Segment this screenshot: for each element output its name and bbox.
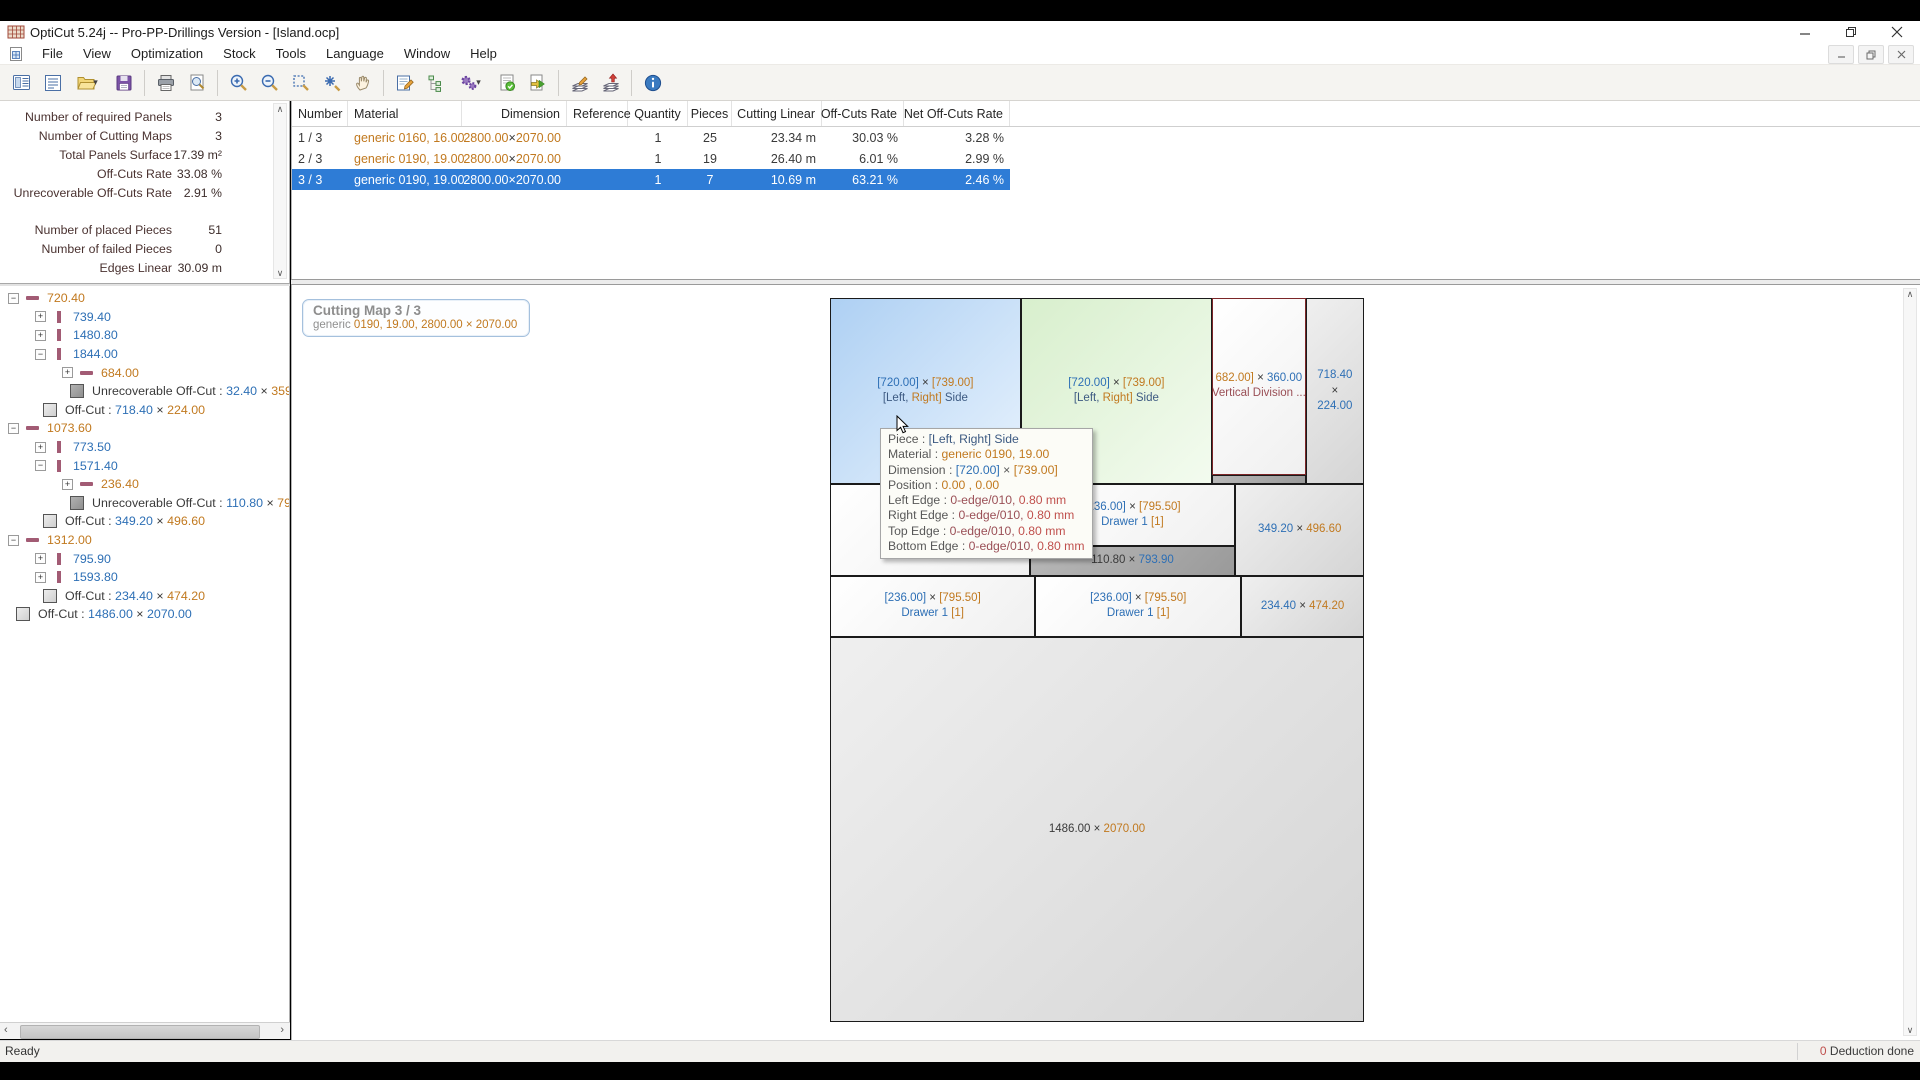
zoom-fit-button[interactable] xyxy=(316,69,347,97)
vertical-cut-icon xyxy=(57,571,61,583)
text-segment: 474.20 xyxy=(167,589,205,603)
text-segment: Bottom Edge : xyxy=(888,539,969,553)
collapse-icon[interactable]: − xyxy=(8,423,19,434)
text-segment: [Left, Right] Side xyxy=(929,432,1019,446)
column-header-reference[interactable]: Reference xyxy=(567,101,628,126)
collapse-icon[interactable]: − xyxy=(35,349,46,360)
text-segment: 1844.00 xyxy=(73,347,118,361)
open-button[interactable]: ▾ xyxy=(68,69,108,97)
tree-item-label: 773.50 xyxy=(73,440,111,454)
text-segment: [720.00] xyxy=(1068,377,1110,389)
scroll-up-icon[interactable]: ∧ xyxy=(277,104,284,114)
piece-label-line: × xyxy=(1331,384,1338,399)
stat-row: Number of Cutting Maps3 xyxy=(0,126,289,145)
vertical-cut-icon xyxy=(57,460,61,472)
text-segment: Dimension : xyxy=(888,463,956,477)
text-segment: 739.40 xyxy=(73,310,111,324)
tree-item[interactable]: +739.40 xyxy=(0,308,289,327)
table-cell: 63.21 % xyxy=(822,169,904,190)
tree-item[interactable]: +795.90 xyxy=(0,549,289,568)
table-cell: 3 / 3 xyxy=(292,169,348,190)
table-cell: generic 0190, 19.00 xyxy=(348,148,462,169)
mdi-close-button[interactable] xyxy=(1888,45,1914,64)
text-segment: [1] xyxy=(951,607,964,619)
text-segment: 2070.00 xyxy=(516,152,561,166)
pan-hand-icon xyxy=(353,73,373,93)
tree-item-label: Off-Cut : 1486.00 × 2070.00 xyxy=(38,607,192,621)
save-button[interactable] xyxy=(108,69,139,97)
tree-item[interactable]: Off-Cut : 718.40 × 224.00 xyxy=(0,401,289,420)
offcut-region[interactable]: 1486.00 × 2070.00 xyxy=(830,637,1364,1022)
text-segment: 6.01 % xyxy=(859,152,898,166)
tree-item[interactable]: Off-Cut : 1486.00 × 2070.00 xyxy=(0,605,289,624)
offcut-region[interactable]: 718.40×224.00 xyxy=(1306,298,1364,484)
text-segment: [795.50] xyxy=(939,592,981,604)
info-button[interactable] xyxy=(637,69,668,97)
text-segment: 349.20 xyxy=(115,514,153,528)
deduction-status: 0 Deduction done xyxy=(1820,1044,1914,1058)
text-segment: 0-edge/010, xyxy=(950,493,1015,507)
tooltip-line: Position : 0.00 , 0.00 xyxy=(888,478,1085,493)
tree-item[interactable]: Off-Cut : 234.40 × 474.20 xyxy=(0,587,289,606)
column-header-off-cuts-rate[interactable]: Off-Cuts Rate xyxy=(822,101,904,126)
column-header-net-off-cuts-rate[interactable]: Net Off-Cuts Rate xyxy=(904,101,1010,126)
print-list-icon xyxy=(43,73,63,93)
text-segment: 1571.40 xyxy=(73,459,118,473)
text-segment: × xyxy=(153,589,167,603)
piece-label-line: Drawer 1 [1] xyxy=(1107,606,1170,621)
unrecoverable-offcut-icon xyxy=(70,384,84,398)
text-segment: 2.99 % xyxy=(965,152,1004,166)
text-segment: 1 xyxy=(655,173,662,187)
text-segment: 2 / 3 xyxy=(298,152,322,166)
table-cell: 1 xyxy=(628,169,688,190)
piece[interactable]: [236.00] × [795.50]Drawer 1 [1] xyxy=(1035,576,1241,638)
column-header-number[interactable]: Number xyxy=(292,101,348,126)
minimize-button[interactable] xyxy=(1782,21,1828,43)
edges-apply-button[interactable] xyxy=(595,69,626,97)
scrollbar-thumb[interactable] xyxy=(20,1025,260,1039)
text-segment: Left Edge : xyxy=(888,493,950,507)
table-cell: 2 / 3 xyxy=(292,148,348,169)
text-segment: × xyxy=(509,152,516,166)
toolbar-separator xyxy=(217,70,218,96)
table-cell: 1 xyxy=(628,148,688,169)
text-segment: 2.46 % xyxy=(965,173,1004,187)
piece-label-line: 1486.00 × 2070.00 xyxy=(1049,822,1145,837)
text-segment: [739.00] xyxy=(1123,377,1165,389)
cutting-map[interactable]: [720.00] × [739.00][Left, Right] Side[72… xyxy=(830,298,1364,1022)
print-preview-button[interactable] xyxy=(181,69,212,97)
statistics-rows: Number of required Panels3Number of Cutt… xyxy=(0,101,289,277)
text-segment: 1 xyxy=(655,131,662,145)
report-button[interactable] xyxy=(6,69,37,97)
expand-icon[interactable]: + xyxy=(62,479,73,490)
offcut-region[interactable]: 349.20 × 496.60 xyxy=(1235,484,1364,575)
text-segment: 63.21 % xyxy=(852,173,898,187)
table-cell: 2800.00 × 2070.00 xyxy=(462,169,567,190)
optimization-parameters-icon xyxy=(426,73,446,93)
validate-icon xyxy=(497,73,517,93)
text-segment: 0-edge/010, xyxy=(969,539,1034,553)
horizontal-cut-icon xyxy=(26,538,39,542)
text-segment: × xyxy=(133,607,147,621)
unrecoverable-offcut-region[interactable] xyxy=(1212,475,1306,484)
tooltip-line: Top Edge : 0-edge/010, 0.80 mm xyxy=(888,524,1085,539)
text-segment: generic 0190, 19.00 xyxy=(354,173,465,187)
text-segment: 2800.00 xyxy=(463,131,508,145)
print-button[interactable] xyxy=(150,69,181,97)
text-segment: Drawer 1 xyxy=(901,607,951,619)
collapse-icon[interactable]: − xyxy=(8,535,19,546)
collapse-icon[interactable]: − xyxy=(8,293,19,304)
text-segment: 32.40 xyxy=(226,384,257,398)
vertical-cut-icon xyxy=(57,553,61,565)
tree-item-label: 684.00 xyxy=(101,366,139,380)
stat-value: 0 xyxy=(172,242,222,256)
tree-item-label: Off-Cut : 234.40 × 474.20 xyxy=(65,589,205,603)
stat-value: 51 xyxy=(172,223,222,237)
status-message: Ready xyxy=(5,1044,40,1058)
table-row[interactable]: 3 / 3generic 0190, 19.002800.00 × 2070.0… xyxy=(292,169,1010,190)
text-segment: Top Edge : xyxy=(888,524,950,538)
text-segment: 718.40 xyxy=(1317,369,1352,381)
text-segment: Right] xyxy=(908,392,941,404)
close-button[interactable] xyxy=(1874,21,1920,43)
menu-window[interactable]: Window xyxy=(394,44,460,63)
piece-label-line: Drawer 1 [1] xyxy=(901,606,964,621)
text-segment: × xyxy=(1331,385,1338,397)
text-segment: [795.50] xyxy=(1145,592,1187,604)
mdi-restore-button[interactable] xyxy=(1858,45,1884,64)
save-icon xyxy=(114,73,134,93)
table-cell: 1 xyxy=(628,127,688,148)
expand-icon[interactable]: + xyxy=(35,553,46,564)
text-segment: Side xyxy=(942,392,968,404)
tooltip-line: Bottom Edge : 0-edge/010, 0.80 mm xyxy=(888,539,1085,554)
text-segment: 793.90 xyxy=(1139,554,1174,566)
scroll-right-icon[interactable]: › xyxy=(280,1024,284,1036)
menu-bar: FileViewOptimizationStockToolsLanguageWi… xyxy=(0,43,1920,64)
map-scrollbar[interactable]: ∧ ∨ xyxy=(1903,288,1917,1036)
piece-label-line: [236.00] × [795.50] xyxy=(885,591,981,606)
piece-label-line: Drawer 1 [1] xyxy=(1101,515,1164,530)
stats-scrollbar[interactable]: ∧ ∨ xyxy=(273,103,287,279)
zoom-window-icon xyxy=(291,73,311,93)
toolbar-separator xyxy=(558,70,559,96)
table-cell xyxy=(567,127,628,148)
edit-pieces-button[interactable] xyxy=(389,69,420,97)
text-segment: Right Edge : xyxy=(888,508,958,522)
edges-apply-icon xyxy=(601,73,621,93)
table-header-row: NumberMaterialDimensionReferenceQuantity… xyxy=(292,101,1920,127)
tree-item-label: 1593.80 xyxy=(73,570,118,584)
cutting-map-panel: Cutting Map 3 / 3 generic 0190, 19.00, 2… xyxy=(291,285,1920,1040)
tree-item[interactable]: −720.40 xyxy=(0,289,289,308)
mdi-minimize-button[interactable] xyxy=(1828,45,1854,64)
text-segment: 0.80 mm xyxy=(1024,508,1075,522)
menu-view[interactable]: View xyxy=(73,44,121,63)
tree-item[interactable]: Unrecoverable Off-Cut : 110.80 × 793.9 xyxy=(0,494,289,513)
horizontal-cut-icon xyxy=(26,426,39,430)
text-segment: [795.50] xyxy=(1139,501,1181,513)
window-title: OptiCut 5.24j -- Pro-PP-Drillings Versio… xyxy=(30,25,339,40)
tree-item[interactable]: +1480.80 xyxy=(0,326,289,345)
menu-tools[interactable]: Tools xyxy=(266,44,316,63)
stat-label: Number of required Panels xyxy=(0,110,172,124)
stat-row: Edges Linear30.09 m xyxy=(0,258,289,277)
scroll-left-icon[interactable]: ‹ xyxy=(4,1024,8,1036)
edit-pieces-icon xyxy=(395,73,415,93)
stat-value: 30.09 m xyxy=(172,261,222,275)
tree-item[interactable]: +773.50 xyxy=(0,438,289,457)
text-segment: × xyxy=(1254,372,1267,384)
stat-row: Number of failed Pieces0 xyxy=(0,239,289,258)
offcut-region[interactable]: 234.40 × 474.20 xyxy=(1241,576,1364,638)
toolbar-separator xyxy=(631,70,632,96)
text-segment: × xyxy=(257,384,271,398)
text-segment: 2070.00 xyxy=(516,131,561,145)
text-segment: Drawer 1 xyxy=(1107,607,1157,619)
text-segment: generic 0190, 19.00 xyxy=(942,447,1050,461)
edges-edit-button[interactable] xyxy=(564,69,595,97)
piece-label-line: [Left, Right] Side xyxy=(883,391,968,406)
stat-row: Unrecoverable Off-Cuts Rate2.91 % xyxy=(0,183,289,202)
scroll-down-icon[interactable]: ∨ xyxy=(1907,1025,1914,1035)
restore-button[interactable] xyxy=(1828,21,1874,43)
vertical-cut-icon xyxy=(57,441,61,453)
table-cell: 2.99 % xyxy=(904,148,1010,169)
print-list-button[interactable] xyxy=(37,69,68,97)
tree-item-label: 1571.40 xyxy=(73,459,118,473)
zoom-out-button[interactable] xyxy=(254,69,285,97)
optimization-parameters-button[interactable] xyxy=(420,69,451,97)
tree-item[interactable]: −1844.00 xyxy=(0,345,289,364)
stat-row: Total Panels Surface17.39 m² xyxy=(0,145,289,164)
pan-button[interactable] xyxy=(347,69,378,97)
menu-help[interactable]: Help xyxy=(460,44,507,63)
text-segment: 0190, 19.00, 2800.00 × 2070.00 xyxy=(354,319,517,331)
mouse-cursor xyxy=(896,415,910,435)
table-cell: generic 0160, 16.00 xyxy=(348,127,462,148)
expand-icon[interactable]: + xyxy=(35,442,46,453)
piece-label-line: [Left, Right] Side xyxy=(1074,391,1159,406)
text-segment: × xyxy=(153,403,167,417)
text-segment: 795.90 xyxy=(73,552,111,566)
piece-label-line: [720.00] × [739.00] xyxy=(1068,376,1164,391)
table-cell: 30.03 % xyxy=(822,127,904,148)
open-dropdown-caret[interactable]: ▾ xyxy=(93,77,98,88)
expand-icon[interactable]: + xyxy=(35,572,46,583)
text-segment: 359.20 xyxy=(271,384,290,398)
tooltip-line: Left Edge : 0-edge/010, 0.80 mm xyxy=(888,493,1085,508)
offcut-icon xyxy=(43,589,57,603)
collapse-icon[interactable]: − xyxy=(35,460,46,471)
text-segment: 1312.00 xyxy=(47,533,92,547)
text-segment: × xyxy=(1126,501,1139,513)
stat-label: Number of Cutting Maps xyxy=(0,129,172,143)
horizontal-cut-icon xyxy=(26,296,39,300)
piece-tooltip: Piece : [Left, Right] SideMaterial : gen… xyxy=(880,428,1093,559)
zoom-in-button[interactable] xyxy=(223,69,254,97)
text-segment: 1486.00 xyxy=(1049,823,1091,835)
text-segment: Vertical Division ... xyxy=(1212,387,1306,399)
tree-item[interactable]: +684.00 xyxy=(0,363,289,382)
text-segment: × xyxy=(1296,600,1309,612)
menu-stock[interactable]: Stock xyxy=(213,44,266,63)
print-icon xyxy=(156,73,176,93)
column-header-material[interactable]: Material xyxy=(348,101,462,126)
horizontal-cut-icon xyxy=(80,371,93,375)
zoom-in-icon xyxy=(229,73,249,93)
text-segment: 496.60 xyxy=(1306,523,1341,535)
statistics-panel: Number of required Panels3Number of Cutt… xyxy=(0,101,290,283)
text-segment: × xyxy=(263,496,277,510)
text-segment: [720.00] xyxy=(956,463,1000,477)
scroll-down-icon[interactable]: ∨ xyxy=(277,268,284,278)
cutting-map-subtitle: generic 0190, 19.00, 2800.00 × 2070.00 xyxy=(313,319,519,331)
text-segment: 0 xyxy=(1820,1044,1827,1058)
settings-button[interactable]: ▾ xyxy=(451,69,491,97)
text-segment: 720.40 xyxy=(47,291,85,305)
text-segment: 110.80 xyxy=(226,496,263,510)
text-segment: Off-Cut : xyxy=(38,607,88,621)
text-segment: 793.9 xyxy=(277,496,290,510)
tree-item-label: Unrecoverable Off-Cut : 32.40 × 359.20 xyxy=(92,384,290,398)
text-segment: 349.20 xyxy=(1258,523,1293,535)
text-segment: 2800.00 xyxy=(463,173,508,187)
validate-button[interactable] xyxy=(491,69,522,97)
cutting-map-title: Cutting Map 3 / 3 xyxy=(313,303,519,318)
expand-icon[interactable]: + xyxy=(35,330,46,341)
text-segment: 682.00] xyxy=(1216,372,1254,384)
text-segment: [236.00] xyxy=(885,592,927,604)
offcut-icon xyxy=(43,403,57,417)
tooltip-line: Material : generic 0190, 19.00 xyxy=(888,447,1085,462)
top-letterbox xyxy=(0,0,1920,21)
text-segment: 3 / 3 xyxy=(298,173,322,187)
vertical-cut-icon xyxy=(57,329,61,341)
text-segment: 3.28 % xyxy=(965,131,1004,145)
tree-item[interactable]: −1312.00 xyxy=(0,531,289,550)
tree-item[interactable]: +1593.80 xyxy=(0,568,289,587)
menu-language[interactable]: Language xyxy=(316,44,394,63)
table-cell: 19 xyxy=(688,148,732,169)
stat-label: Number of failed Pieces xyxy=(0,242,172,256)
text-segment: Deduction done xyxy=(1827,1044,1914,1058)
tree-item[interactable]: Off-Cut : 349.20 × 496.60 xyxy=(0,512,289,531)
text-segment: × xyxy=(1132,592,1145,604)
zoom-fit-icon xyxy=(322,73,342,93)
text-segment: 0-edge/010, xyxy=(950,524,1015,538)
text-segment: 19 xyxy=(703,152,717,166)
text-segment: × xyxy=(1000,463,1014,477)
stat-value: 17.39 m² xyxy=(172,148,222,162)
text-segment: 26.40 m xyxy=(771,152,816,166)
tree-item-label: 1480.80 xyxy=(73,328,118,342)
export-button[interactable] xyxy=(522,69,553,97)
text-segment: 10.69 m xyxy=(771,173,816,187)
piece-label-line: [236.00] × [795.50] xyxy=(1090,591,1186,606)
text-segment: Off-Cut : xyxy=(65,589,115,603)
text-segment: Drawer 1 xyxy=(1101,516,1151,528)
text-segment: 1 / 3 xyxy=(298,131,322,145)
column-header-cutting-linear[interactable]: Cutting Linear xyxy=(732,101,822,126)
text-segment: [Left, xyxy=(883,392,909,404)
tooltip-line: Piece : [Left, Right] Side xyxy=(888,432,1085,447)
settings-dropdown-caret[interactable]: ▾ xyxy=(476,77,481,88)
zoom-out-icon xyxy=(260,73,280,93)
piece-label-line: 110.80 × 793.90 xyxy=(1091,553,1174,568)
text-segment: × xyxy=(509,173,516,187)
edges-edit-icon xyxy=(570,73,590,93)
table-cell: 1 / 3 xyxy=(292,127,348,148)
table-cell xyxy=(567,148,628,169)
piece-label-line: 682.00] × 360.00 xyxy=(1216,371,1303,386)
text-segment: 23.34 m xyxy=(771,131,816,145)
tree-item[interactable]: −1571.40 xyxy=(0,456,289,475)
piece-label-line: [720.00] × [739.00] xyxy=(877,376,973,391)
tree-item[interactable]: −1073.60 xyxy=(0,419,289,438)
table-row[interactable]: 1 / 3generic 0160, 16.002800.00 × 2070.0… xyxy=(292,127,1010,148)
column-header-pieces[interactable]: Pieces xyxy=(688,101,732,126)
stat-label: Number of placed Pieces xyxy=(0,223,172,237)
menu-file[interactable]: File xyxy=(32,44,73,63)
piece[interactable]: [236.00] × [795.50]Drawer 1 [1] xyxy=(830,576,1035,638)
table-cell: 23.34 m xyxy=(732,127,822,148)
text-segment: × xyxy=(1090,823,1103,835)
text-segment: [Left, xyxy=(1074,392,1100,404)
zoom-window-button[interactable] xyxy=(285,69,316,97)
column-header-dimension[interactable]: Dimension xyxy=(462,101,567,126)
expand-icon[interactable]: + xyxy=(62,367,73,378)
column-header-quantity[interactable]: Quantity xyxy=(628,101,688,126)
title-bar: OptiCut 5.24j -- Pro-PP-Drillings Versio… xyxy=(0,21,1920,43)
scroll-up-icon[interactable]: ∧ xyxy=(1907,289,1914,299)
text-segment: 0-edge/010, xyxy=(958,508,1023,522)
text-segment: 30.03 % xyxy=(852,131,898,145)
text-segment: 110.80 xyxy=(1091,554,1125,566)
stat-label: Edges Linear xyxy=(0,261,172,275)
tree-item[interactable]: +236.40 xyxy=(0,475,289,494)
text-segment: 0.80 mm xyxy=(1034,539,1085,553)
text-segment: × xyxy=(1110,377,1123,389)
tree-item-label: Off-Cut : 349.20 × 496.60 xyxy=(65,514,205,528)
table-cell: 2800.00 × 2070.00 xyxy=(462,148,567,169)
menu-optimization[interactable]: Optimization xyxy=(121,44,213,63)
text-segment: Position : xyxy=(888,478,942,492)
offcut-icon xyxy=(43,514,57,528)
expand-icon[interactable]: + xyxy=(35,311,46,322)
piece-label-line: 234.40 × 474.20 xyxy=(1261,599,1344,614)
text-segment: generic 0190, 19.00 xyxy=(354,152,465,166)
table-row[interactable]: 2 / 3generic 0190, 19.002800.00 × 2070.0… xyxy=(292,148,1010,169)
piece[interactable]: 682.00] × 360.00Vertical Division ... xyxy=(1212,298,1306,475)
text-segment: 7 xyxy=(707,173,714,187)
table-cell: 3.28 % xyxy=(904,127,1010,148)
menu-items: FileViewOptimizationStockToolsLanguageWi… xyxy=(32,44,507,63)
text-segment: 718.40 xyxy=(115,403,153,417)
tree-horizontal-scrollbar[interactable]: ‹ › xyxy=(0,1022,290,1039)
text-segment: [720.00] xyxy=(877,377,919,389)
stat-label: Total Panels Surface xyxy=(0,148,172,162)
opticut-window: OptiCut 5.24j -- Pro-PP-Drillings Versio… xyxy=(0,0,1920,1080)
text-segment: Material : xyxy=(888,447,942,461)
tree-item[interactable]: Unrecoverable Off-Cut : 32.40 × 359.20 xyxy=(0,382,289,401)
table-cell: 26.40 m xyxy=(732,148,822,169)
text-segment: × xyxy=(919,377,932,389)
text-segment: 25 xyxy=(703,131,717,145)
